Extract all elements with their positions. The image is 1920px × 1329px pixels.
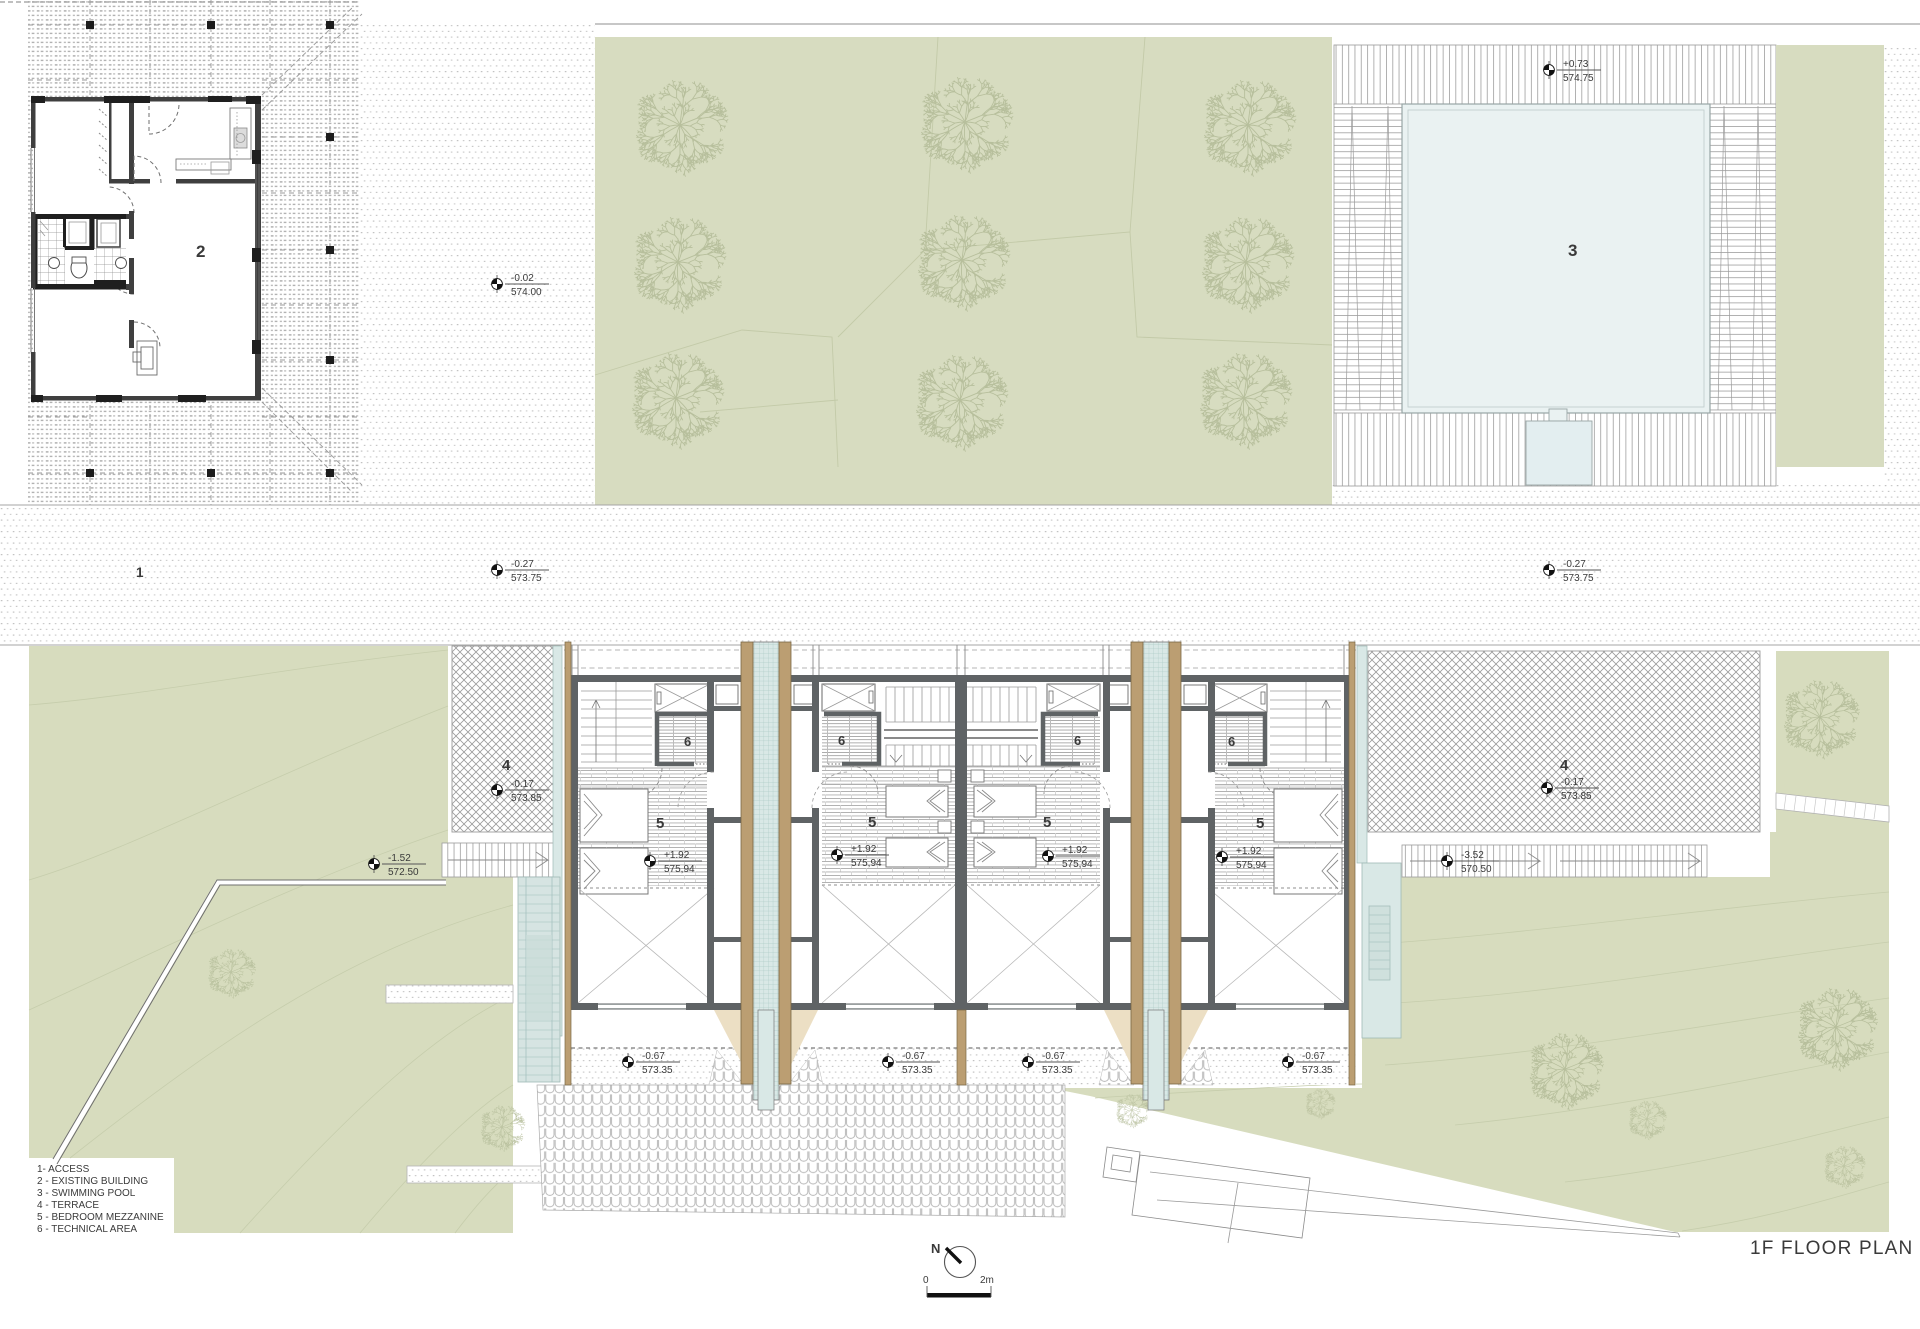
svg-text:-0.27: -0.27 bbox=[1563, 559, 1586, 570]
svg-text:573.85: 573.85 bbox=[511, 793, 542, 804]
svg-text:2m: 2m bbox=[980, 1275, 994, 1286]
svg-text:3 - SWIMMING POOL: 3 - SWIMMING POOL bbox=[37, 1188, 136, 1199]
svg-text:575,94: 575,94 bbox=[851, 858, 882, 869]
svg-text:575,94: 575,94 bbox=[664, 864, 695, 875]
svg-text:-0.17: -0.17 bbox=[1561, 777, 1584, 788]
svg-text:+1.92: +1.92 bbox=[851, 844, 877, 855]
svg-text:1F FLOOR PLAN: 1F FLOOR PLAN bbox=[1750, 1238, 1913, 1259]
svg-text:573.35: 573.35 bbox=[642, 1065, 673, 1076]
svg-text:1- ACCESS: 1- ACCESS bbox=[37, 1164, 90, 1175]
svg-text:5: 5 bbox=[1043, 814, 1051, 831]
svg-text:6: 6 bbox=[684, 734, 691, 749]
svg-text:572.50: 572.50 bbox=[388, 867, 419, 878]
svg-text:574.75: 574.75 bbox=[1563, 73, 1594, 84]
svg-text:573.85: 573.85 bbox=[1561, 791, 1592, 802]
svg-text:573.75: 573.75 bbox=[1563, 573, 1594, 584]
svg-text:2 - EXISTING BUILDING: 2 - EXISTING BUILDING bbox=[37, 1176, 148, 1187]
svg-text:N: N bbox=[931, 1241, 940, 1256]
svg-text:-0.67: -0.67 bbox=[1302, 1051, 1325, 1062]
svg-text:-0.67: -0.67 bbox=[642, 1051, 665, 1062]
svg-text:573.35: 573.35 bbox=[1302, 1065, 1333, 1076]
svg-text:+0.73: +0.73 bbox=[1563, 59, 1589, 70]
svg-text:2: 2 bbox=[196, 242, 205, 261]
svg-text:-1.52: -1.52 bbox=[388, 853, 411, 864]
svg-text:-0.67: -0.67 bbox=[902, 1051, 925, 1062]
svg-text:+1.92: +1.92 bbox=[1062, 845, 1088, 856]
svg-text:575,94: 575,94 bbox=[1236, 860, 1267, 871]
svg-text:-0.17: -0.17 bbox=[511, 779, 534, 790]
svg-text:5: 5 bbox=[656, 815, 664, 832]
svg-text:6: 6 bbox=[838, 733, 845, 748]
svg-text:6: 6 bbox=[1228, 734, 1235, 749]
svg-text:1: 1 bbox=[136, 565, 144, 580]
svg-text:-3.52: -3.52 bbox=[1461, 850, 1484, 861]
svg-text:573.35: 573.35 bbox=[1042, 1065, 1073, 1076]
svg-text:5 - BEDROOM MEZZANINE: 5 - BEDROOM MEZZANINE bbox=[37, 1212, 164, 1223]
svg-text:0: 0 bbox=[923, 1275, 929, 1286]
svg-text:-0.02: -0.02 bbox=[511, 273, 534, 284]
svg-text:573.35: 573.35 bbox=[902, 1065, 933, 1076]
svg-text:4: 4 bbox=[502, 757, 511, 774]
svg-text:575,94: 575,94 bbox=[1062, 859, 1093, 870]
svg-text:574.00: 574.00 bbox=[511, 287, 542, 298]
svg-text:5: 5 bbox=[868, 814, 876, 831]
svg-text:6 - TECHNICAL AREA: 6 - TECHNICAL AREA bbox=[37, 1224, 137, 1235]
svg-text:+1.92: +1.92 bbox=[1236, 846, 1262, 857]
svg-text:573.75: 573.75 bbox=[511, 573, 542, 584]
svg-text:4 - TERRACE: 4 - TERRACE bbox=[37, 1200, 99, 1211]
svg-text:+1.92: +1.92 bbox=[664, 850, 690, 861]
svg-text:3: 3 bbox=[1568, 241, 1577, 260]
svg-text:5: 5 bbox=[1256, 815, 1264, 832]
svg-text:570.50: 570.50 bbox=[1461, 864, 1492, 875]
svg-text:-0.27: -0.27 bbox=[511, 559, 534, 570]
svg-text:4: 4 bbox=[1560, 757, 1569, 774]
svg-text:6: 6 bbox=[1074, 733, 1081, 748]
svg-text:-0.67: -0.67 bbox=[1042, 1051, 1065, 1062]
